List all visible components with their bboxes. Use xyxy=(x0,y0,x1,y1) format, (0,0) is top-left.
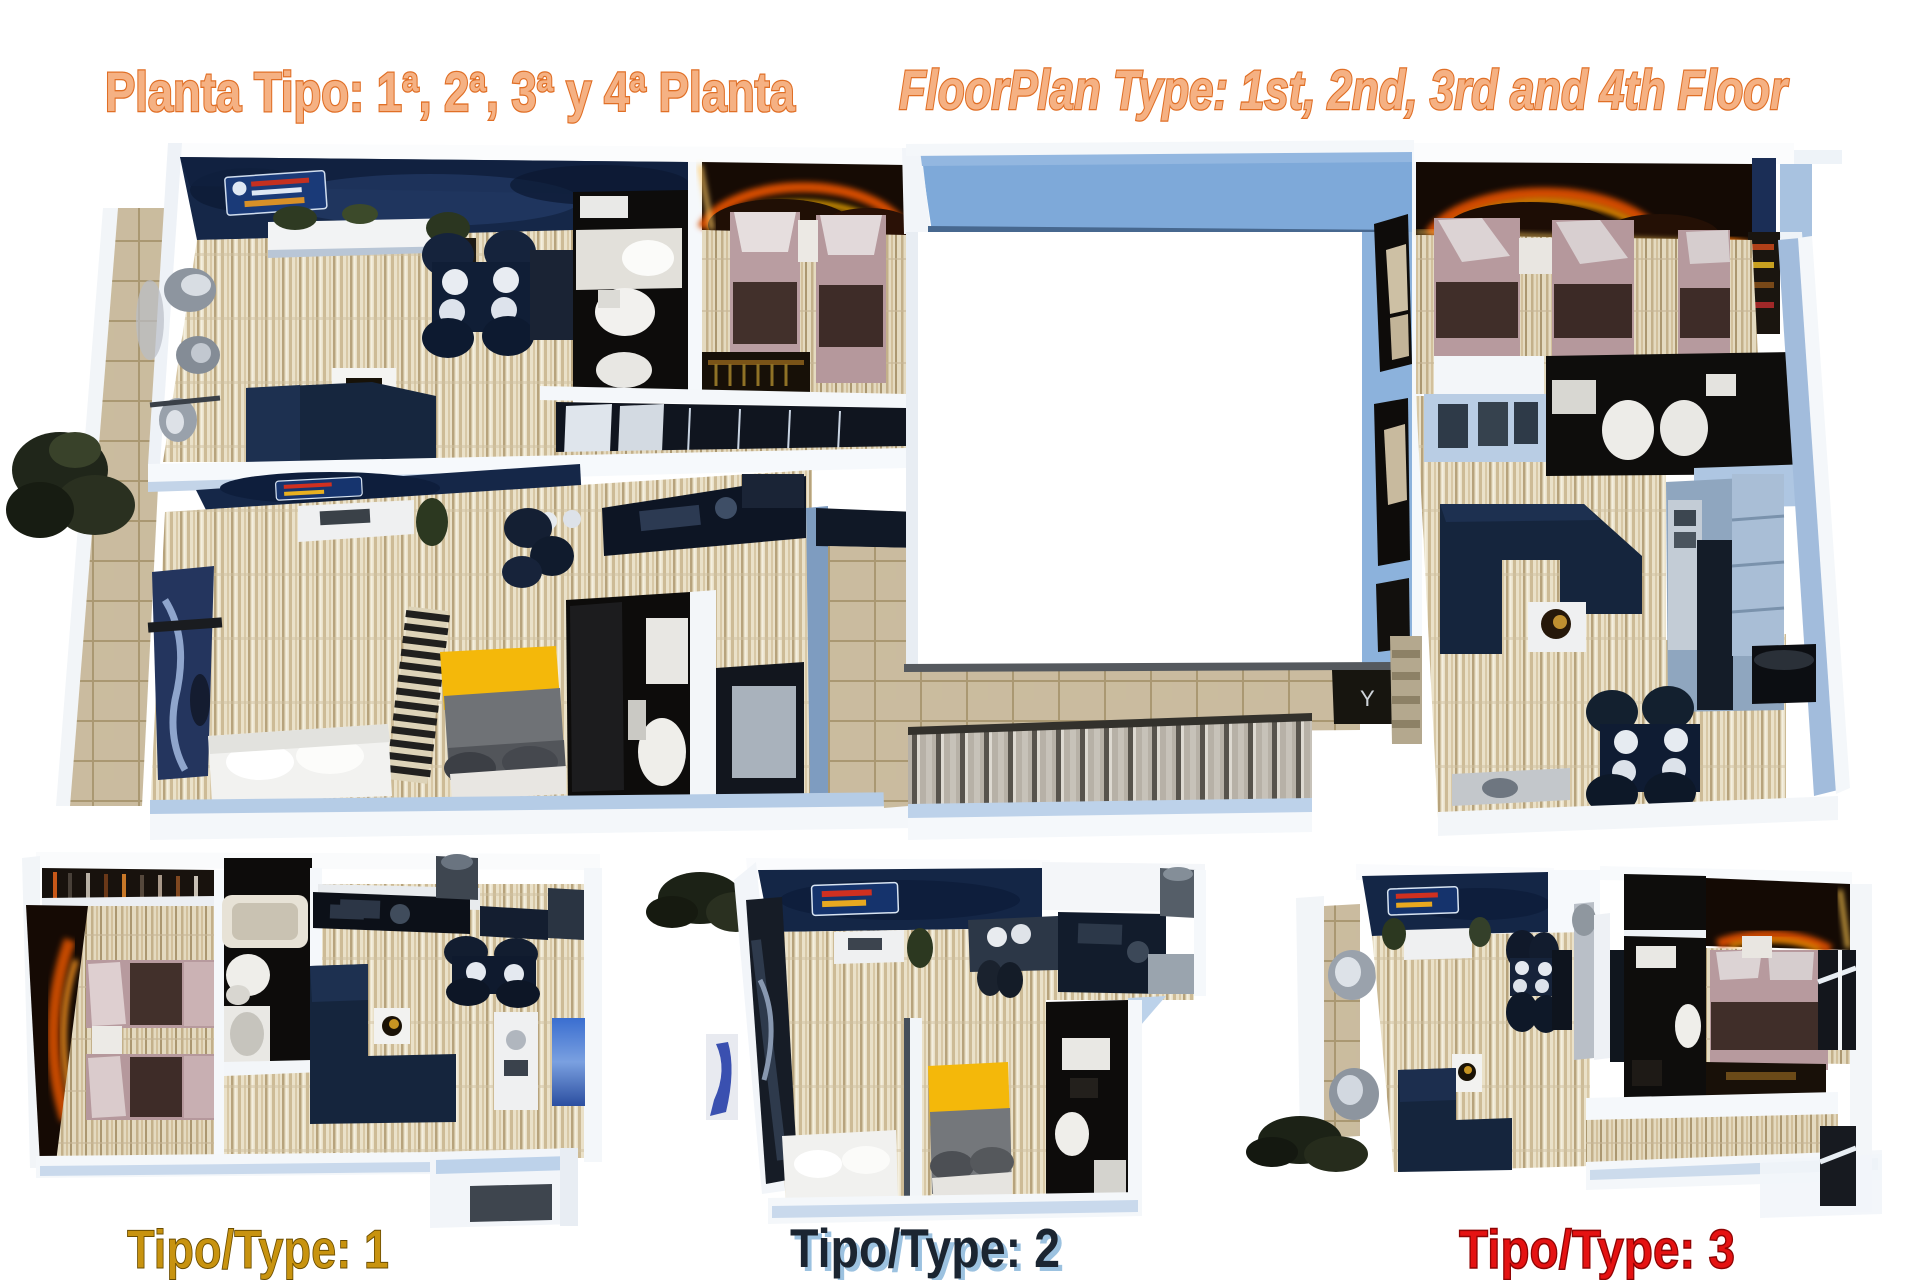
svg-text:Y: Y xyxy=(1360,686,1375,711)
svg-text:Planta Tipo: 1ª, 2ª, 3ª y 4ª P: Planta Tipo: 1ª, 2ª, 3ª y 4ª Planta xyxy=(105,60,796,123)
svg-text:Tipo/Type: 1: Tipo/Type: 1 xyxy=(127,1218,389,1280)
svg-text:Tipo/Type: 2: Tipo/Type: 2 xyxy=(790,1217,1060,1279)
svg-text:FloorPlan Type: 1st, 2nd, 3rd: FloorPlan Type: 1st, 2nd, 3rd and 4th Fl… xyxy=(899,58,1789,121)
svg-text:Tipo/Type: 3: Tipo/Type: 3 xyxy=(1459,1218,1735,1280)
